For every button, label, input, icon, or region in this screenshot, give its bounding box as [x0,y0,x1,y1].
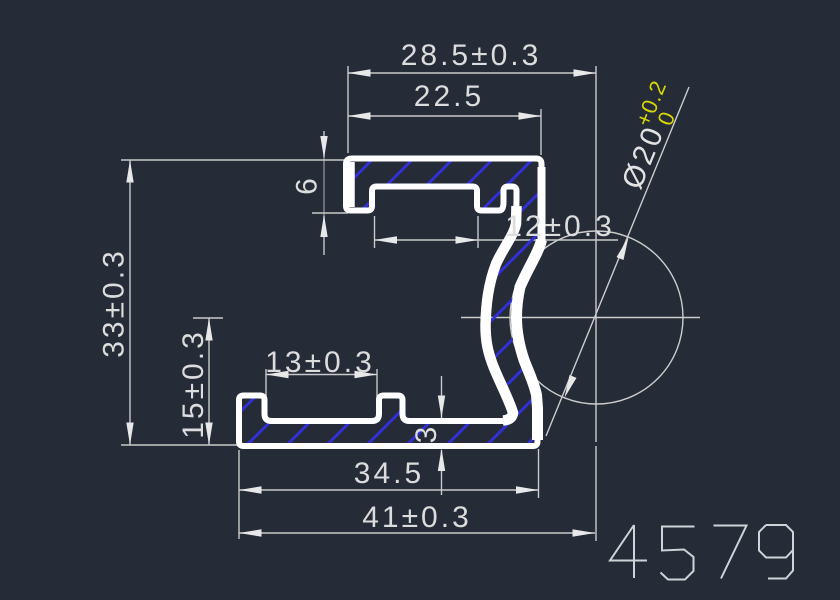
svg-text:22.5: 22.5 [414,80,484,113]
svg-text:6: 6 [291,175,324,195]
svg-text:3: 3 [410,424,443,444]
svg-text:34.5: 34.5 [354,457,424,490]
svg-text:12±0.3: 12±0.3 [505,210,615,243]
svg-text:28.5±0.3: 28.5±0.3 [401,39,542,72]
svg-text:13±0.3: 13±0.3 [265,346,375,379]
svg-text:15±0.3: 15±0.3 [177,329,210,439]
svg-text:33±0.3: 33±0.3 [98,248,131,358]
svg-text:41±0.3: 41±0.3 [362,501,472,534]
